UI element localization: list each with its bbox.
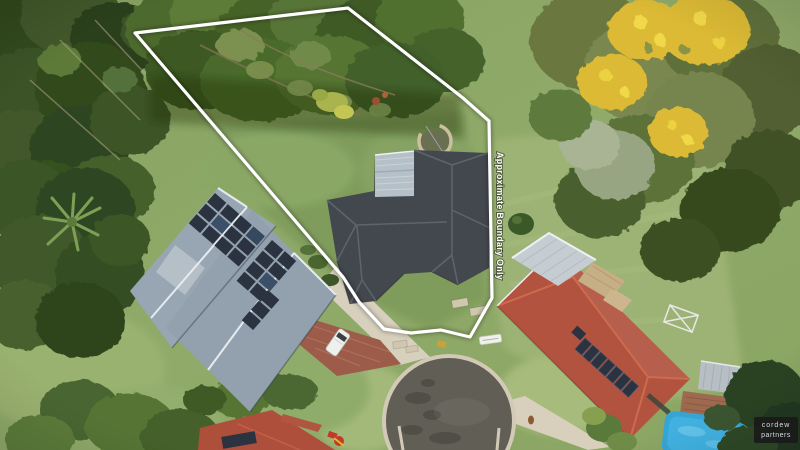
watermark: cordew partners bbox=[754, 417, 798, 443]
watermark-background bbox=[754, 417, 798, 443]
watermark-line1: cordew bbox=[762, 422, 791, 429]
watermark-line2: partners bbox=[761, 432, 791, 439]
aerial-photo-frame: Approximate Boundary Only cordew partner… bbox=[0, 0, 800, 450]
vignette bbox=[0, 0, 800, 450]
aerial-photo: Approximate Boundary Only cordew partner… bbox=[0, 0, 800, 450]
